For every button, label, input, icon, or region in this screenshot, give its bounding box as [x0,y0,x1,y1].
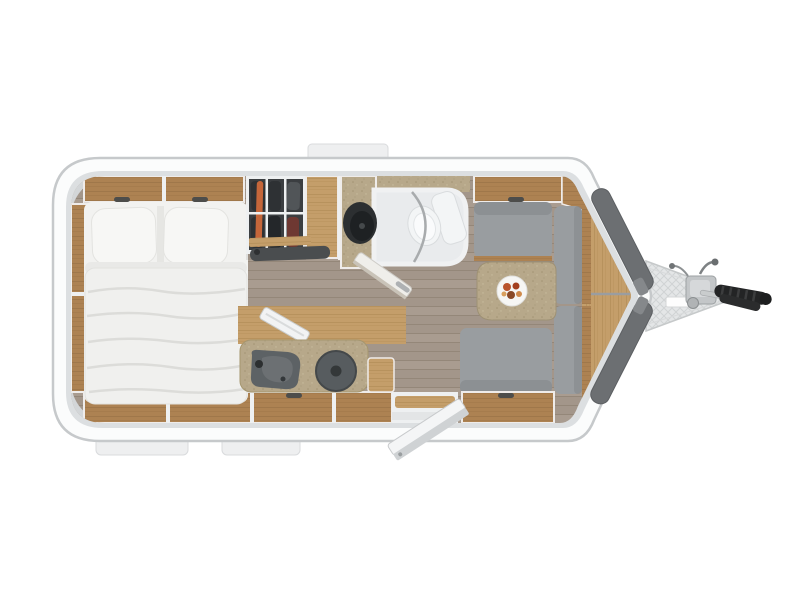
caravan-floorplan-canvas [0,0,800,600]
wardrobe-divider-h [249,212,303,215]
bench-cabinet-handle [498,393,514,398]
locker-handle-right [192,197,208,202]
pillow-left [91,207,157,265]
hanging-clothes [269,181,281,211]
food-item [507,291,515,299]
plate-of-food [497,276,527,306]
mat-knob [254,249,260,255]
bottom-cabinet-divider-2 [250,392,254,423]
kitchen-side-extension [368,358,394,392]
dinette-locker-handle [508,197,524,202]
dinette [460,176,604,423]
double-bed [84,202,248,404]
pillow-right [163,207,229,265]
front-bench-back-upper [582,202,591,304]
hob-knob [331,366,342,377]
sink-drain [281,377,286,382]
lever-knob [712,259,719,266]
food-item [513,283,520,290]
cable-knob [669,263,675,269]
food-item [516,291,522,297]
hanging-clothes [287,182,301,210]
bench-front-lower-edge [574,306,582,394]
tap-hole [255,360,263,368]
bench-top-backrest [474,202,552,215]
overhead-locker-divider [162,176,166,202]
jockey-wheel [688,298,699,309]
slatted-sideboard [306,176,338,258]
basin-drain [359,223,365,229]
bottom-cabinet-divider-3 [332,392,336,423]
bench-front-upper-edge [574,206,582,304]
duvet [85,262,247,404]
pillow-gap-crease [157,206,164,264]
wardrobe [246,176,346,261]
bench-top-base [474,256,552,261]
release-lever [700,262,714,274]
food-item [503,283,511,291]
bottom-cabinet-handle-3 [286,393,302,398]
floorplan-render [0,0,800,600]
food-item [502,292,507,297]
locker-handle-left [114,197,130,202]
